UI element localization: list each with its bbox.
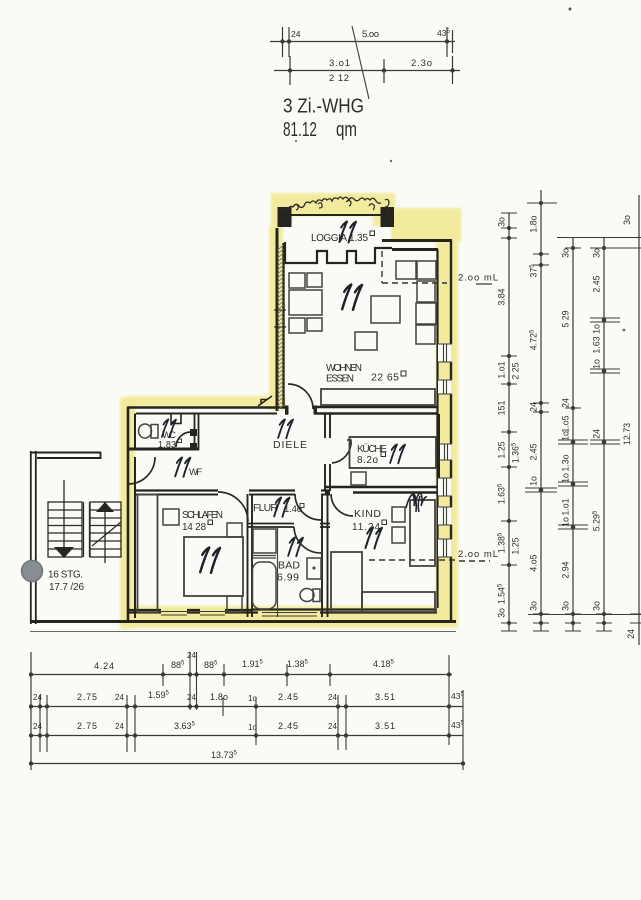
svg-text:24: 24 [328,693,337,702]
svg-text:1o: 1o [592,324,602,334]
svg-text:4.o5: 4.o5 [529,554,539,571]
svg-text:24: 24 [592,429,602,439]
svg-text:3.51: 3.51 [375,692,395,702]
svg-text:KÜCHE: KÜCHE [357,443,387,455]
svg-text:2 25: 2 25 [511,362,521,379]
svg-text:11.24: 11.24 [352,522,380,533]
svg-text:1.o5: 1.o5 [561,415,571,432]
svg-text:SCHLAFEN: SCHLAFEN [182,510,223,521]
svg-text:2.3o: 2.3o [411,58,432,69]
svg-text:3o: 3o [622,215,632,225]
svg-text:2.oo mL: 2.oo mL [458,549,498,560]
svg-text:151: 151 [497,401,507,416]
svg-text:2.94: 2.94 [561,561,571,578]
svg-text:KIND: KIND [354,508,381,520]
svg-text:24: 24 [33,693,42,702]
svg-text:22 65: 22 65 [371,372,399,384]
svg-text:3.o1: 3.o1 [329,58,350,69]
svg-text:3o: 3o [497,608,507,618]
svg-text:24: 24 [291,29,301,39]
svg-text:ESSEN: ESSEN [326,374,354,385]
svg-text:8.2o: 8.2o [357,455,378,466]
svg-text:24: 24 [626,629,636,639]
svg-text:3.51: 3.51 [375,721,395,731]
svg-text:2.45: 2.45 [278,721,298,731]
svg-text:3o: 3o [592,601,602,611]
svg-text:24: 24 [187,651,196,660]
svg-text:1.25: 1.25 [497,441,507,458]
svg-text:BAD: BAD [278,560,300,572]
svg-text:1o: 1o [561,431,571,441]
svg-text:3o: 3o [561,601,571,611]
svg-text:24: 24 [115,722,124,731]
svg-text:1.8o: 1.8o [529,215,539,232]
svg-text:4.24: 4.24 [94,661,114,671]
svg-text:16 STG.: 16 STG. [48,570,83,581]
svg-text:2.75: 2.75 [77,721,97,731]
svg-text:1o: 1o [248,723,257,732]
svg-text:1.83: 1.83 [158,440,176,450]
svg-text:3o: 3o [497,217,507,227]
svg-text:1o: 1o [561,473,571,483]
svg-text:1.o1: 1.o1 [497,361,507,378]
svg-text:2 12: 2 12 [329,73,349,84]
svg-text:24: 24 [33,722,42,731]
svg-text:12.73: 12.73 [622,423,632,445]
svg-text:3o: 3o [592,248,602,258]
svg-text:2.45: 2.45 [529,443,539,460]
svg-text:17.7 /26: 17.7 /26 [49,582,84,593]
svg-text:6.99: 6.99 [277,572,299,584]
svg-text:DIELE: DIELE [273,439,307,451]
svg-text:24: 24 [529,402,539,412]
svg-text:WOHNEN: WOHNEN [326,363,362,374]
svg-text:3 Zi.-WHG: 3 Zi.-WHG [283,95,364,118]
svg-text:2.45: 2.45 [592,275,602,292]
svg-text:3o: 3o [561,248,571,258]
svg-text:2.45: 2.45 [278,692,298,702]
svg-text:WF: WF [189,467,202,478]
svg-text:5 29: 5 29 [561,310,571,327]
svg-text:1.o1: 1.o1 [561,498,571,515]
svg-text:24: 24 [561,398,571,408]
svg-text:24: 24 [328,722,337,731]
svg-text:14 28: 14 28 [182,522,206,533]
svg-text:1o: 1o [248,694,257,703]
svg-text:1o: 1o [529,476,539,486]
svg-text:1.8o: 1.8o [210,692,228,702]
svg-text:24: 24 [115,693,124,702]
svg-text:1o: 1o [592,359,602,369]
svg-text:2.75: 2.75 [77,692,97,702]
svg-text:3o: 3o [529,601,539,611]
svg-text:3.84: 3.84 [497,288,507,305]
svg-text:1.25: 1.25 [511,537,521,554]
svg-text:1.3o: 1.3o [561,454,571,471]
svg-text:24: 24 [187,693,196,702]
svg-text:1o: 1o [561,517,571,527]
svg-text:2.oo mL: 2.oo mL [458,273,498,284]
svg-text:5.oo: 5.oo [362,29,379,40]
svg-text:1.63: 1.63 [592,336,602,353]
